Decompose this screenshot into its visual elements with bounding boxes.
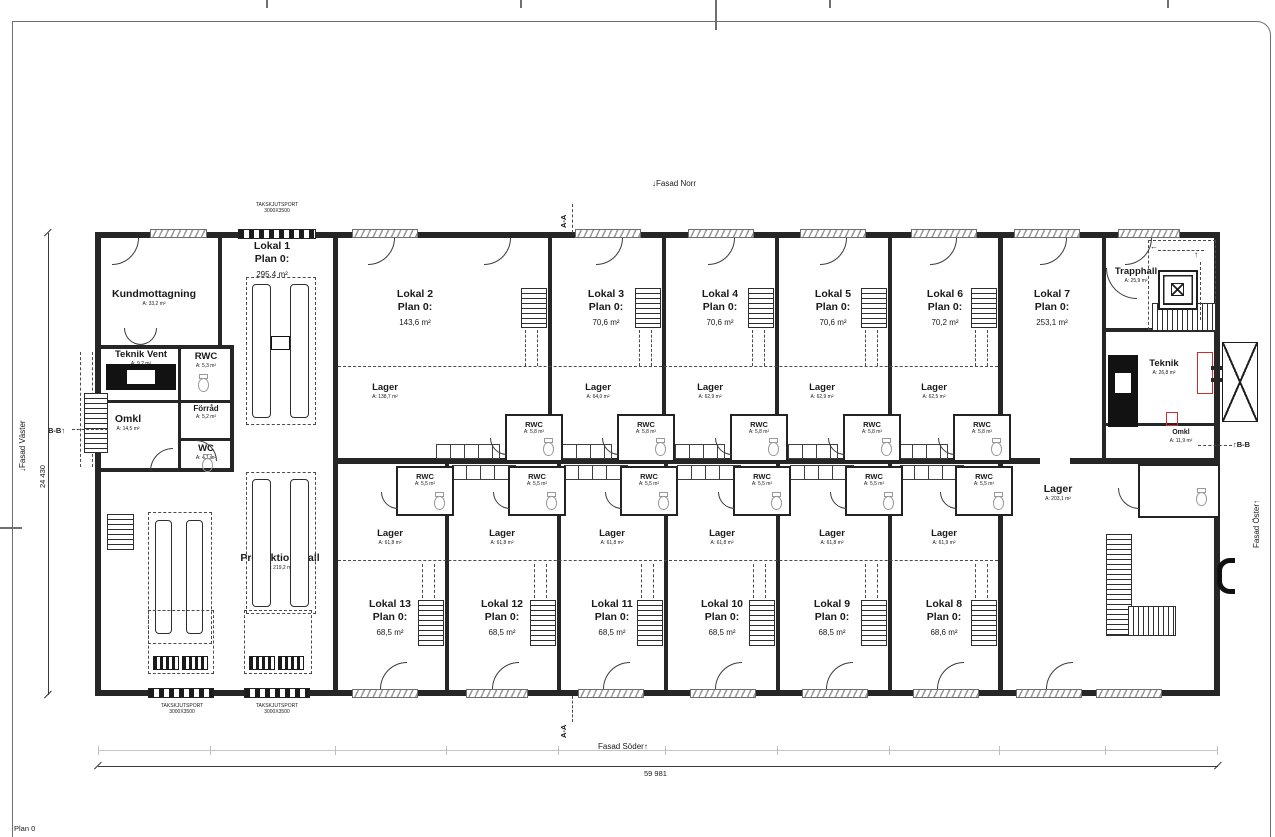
unit-label-line: 68,5 m² [701,628,743,638]
lager-label-lokal-11: LagerA: 61,8 m² [599,528,625,546]
lager-label-lokal-10: LagerA: 61,8 m² [709,528,735,546]
toilet-rwc-bottom-11 [658,496,669,510]
stair-up-dash-a-bottom-8 [975,564,976,598]
stair-produktionshall [107,514,134,550]
rwc-bottom-10-label: RWCA: 5,5 m² [752,472,772,488]
dim-gray-line [98,750,1218,751]
window-top-4 [800,229,866,238]
unit-label-line: 70,6 m² [702,318,738,328]
floor-plan-sheet: ↓Fasad Norr Fasad Söder↑ ↓Fasad Väster F… [0,0,1275,837]
window-top-7 [1118,229,1180,238]
lager-label-line: A: 138,7 m² [372,394,398,400]
room-label-rwc-left: RWCA: 5,3 m² [195,351,218,369]
unit-label-line: 70,2 m² [927,318,963,328]
unit-label-line: 70,6 m² [588,318,624,328]
unit-label-lokal-8: Lokal 8Plan 0:68,6 m² [926,598,962,638]
window-bottom-3 [690,689,756,698]
rwc-top-4-label: RWCA: 5,8 m² [749,420,769,436]
unit-label-line: Lokal 9 [814,598,850,611]
unit-label-line: Plan 0: [926,611,962,624]
lager-label-line: Lager [585,382,611,394]
lager-label-line: Lager [697,382,723,394]
wall-left-h400 [98,400,233,403]
room-label-lokal1: Lokal 1Plan 0:295,4 m² [254,240,290,280]
wall-forrad-wc [181,438,232,441]
mezzanine-dash-top [338,366,998,367]
unit-label-line: Lokal 12 [481,598,523,611]
stair-up-dash-a-top-2 [525,330,526,366]
window-bottom-7 [1096,689,1162,698]
crane-hook-symbol [1217,558,1235,594]
window-top-5 [911,229,977,238]
stair-up-dash-a-bottom-13 [422,564,423,598]
lager-label-lokal-3: LagerA: 64,0 m² [585,382,611,400]
rwc-bottom-13-label: RWCA: 5,5 m² [415,472,435,488]
lokal1-lift-2-post-right [290,479,309,607]
toilet-rwc-bottom-10 [771,496,782,510]
stair-top-6 [971,288,997,328]
counter-bottom-0 [452,465,516,480]
rwc-label-line: A: 5,5 m² [752,481,772,487]
unit-label-line: Lokal 13 [369,598,411,611]
lager-label-line: A: 64,0 m² [585,394,611,400]
unit-label-line: 68,6 m² [926,628,962,638]
facade-label-west: ↓Fasad Väster [18,420,27,472]
unit-label-line: Lokal 6 [927,288,963,301]
stair-up-dash-b-bottom-8 [987,564,988,598]
arrow-down-icon: ↓ [18,468,27,472]
rwc-label-line: A: 5,5 m² [527,481,547,487]
lager-label-lokal-8: LagerA: 61,9 m² [931,528,957,546]
unit-label-line: Plan 0: [481,611,523,624]
rwc-bottom-8-label: RWCA: 5,5 m² [974,472,994,488]
window-bottom-2 [578,689,644,698]
room-label-lokal7: Lokal 7Plan 0:253,1 m² [1034,288,1070,328]
dim-gray-tick-1 [210,746,211,755]
dimension-width: 59 981 [640,769,671,778]
dim-gray-tick-6 [777,746,778,755]
facade-label-east: Fasad Öster↑ [1252,500,1261,548]
unit-label-line: Plan 0: [591,611,632,624]
east-lift-symbol [1222,342,1258,422]
stair-bottom-12 [530,600,556,646]
toilet-rwc-top-4 [768,442,779,456]
teknik-vent-equipment-slot [126,369,156,385]
lager-label-line: Lager [709,528,735,540]
rwc-label-line: RWC [974,472,994,481]
toilet-rwc-left [198,378,209,392]
toilet-rwc-top-3 [655,442,666,456]
window-bottom-5 [913,689,979,698]
fold-mark-4 [829,0,831,8]
overhead-door-top [238,229,316,239]
stair-up-dash-b-bottom-12 [546,564,547,598]
window-top-0 [150,229,207,238]
unit-label-line: 68,5 m² [814,628,850,638]
unit-label-line: Lokal 4 [702,288,738,301]
lager-label-line: A: 61,8 m² [377,540,403,546]
stair-up-dash-b-top-4 [764,330,765,366]
window-bottom-0 [352,689,418,698]
lager-label-lokal-12: LagerA: 61,8 m² [489,528,515,546]
outer-wall-west [95,232,101,696]
rwc-label-line: A: 5,5 m² [974,481,994,487]
unit-label-lokal-10: Lokal 10Plan 0:68,5 m² [701,598,743,638]
overhead-door-bottom-2 [244,688,310,698]
stair-up-dash-a-bottom-9 [865,564,866,598]
stair-up-dash-b-top-6 [987,330,988,366]
lager-label-line: Lager [372,382,398,394]
bumper-1b [182,656,208,670]
lager-label-line: Lager [819,528,845,540]
counter-bottom-2 [677,465,741,480]
lager-label-line: Lager [489,528,515,540]
lager-label-line: Lager [809,382,835,394]
section-bb-line-left [72,429,108,430]
toilet-rwc-bottom-12 [546,496,557,510]
stair-lager-right-h [1128,606,1176,636]
rwc-label-line: A: 5,5 m² [864,481,884,487]
unit-label-line: Lokal 11 [591,598,632,611]
unit-label-line: 70,6 m² [815,318,851,328]
unit-label-line: Plan 0: [815,301,851,314]
wall-v-lokal1-east [333,236,338,692]
counter-top-0 [436,444,500,459]
fold-mark-left [0,527,22,529]
section-marker-aa-bottom: A-A [559,725,568,738]
wall-omkl-forrad [178,402,181,470]
lager-label-line: A: 61,8 m² [709,540,735,546]
unit-label-line: Plan 0: [701,611,743,624]
section-bb-line-right [1198,445,1232,446]
stair-up-dash-b-bottom-10 [765,564,766,598]
stair-bottom-9 [861,600,887,646]
toilet-rwc-bottom-9 [883,496,894,510]
room-label-omkl-right: OmklA: 11,9 m² [1170,429,1193,444]
overhead-door-label-bottom-1: TAKSKJUTSPORT3000X3500 [161,703,203,716]
section-marker-aa-top: A-A [559,215,568,228]
unit-label-lokal-2: Lokal 2Plan 0:143,6 m² [397,288,433,328]
teknik-red-small [1166,412,1178,426]
trapphall-arrow-line-v [1200,262,1201,320]
stair-top-4 [748,288,774,328]
lager-label-line: A: 62,9 m² [697,394,723,400]
rwc-label-line: RWC [864,472,884,481]
stair-bottom-13 [418,600,444,646]
lager-label-lokal-5: LagerA: 62,9 m² [809,382,835,400]
lager-label-lokal-4: LagerA: 62,9 m² [697,382,723,400]
rwc-label-line: RWC [862,420,882,429]
toilet-rwc-right [1196,492,1207,506]
unit-label-lokal-9: Lokal 9Plan 0:68,5 m² [814,598,850,638]
unit-label-line: 68,5 m² [591,628,632,638]
dim-left-line [48,233,49,695]
unit-label-line: 143,6 m² [397,318,433,328]
unit-label-line: Plan 0: [702,301,738,314]
unit-label-lokal-6: Lokal 6Plan 0:70,2 m² [927,288,963,328]
lokal1-lift-1-post-right [290,284,309,418]
unit-label-line: Lokal 8 [926,598,962,611]
dim-gray-tick-7 [889,746,890,755]
lager-label-lokal-2: LagerA: 138,7 m² [372,382,398,400]
rwc-top-6-label: RWCA: 5,8 m² [972,420,992,436]
fold-mark-5 [1167,0,1169,8]
stair-up-dash-b-bottom-9 [877,564,878,598]
stair-up-dash-a-top-3 [639,330,640,366]
section-marker-bb-left: B-B↑ [48,426,65,435]
window-top-2 [575,229,641,238]
west-outside-dash-1 [80,352,81,467]
rwc-label-line: A: 5,8 m² [636,429,656,435]
lager-label-lokal-9: LagerA: 61,8 m² [819,528,845,546]
dimension-height: 24 430 [38,465,47,488]
window-top-1 [352,229,418,238]
toilet-rwc-bottom-13 [434,496,445,510]
stair-up-dash-a-bottom-10 [753,564,754,598]
lager-label-line: A: 61,8 m² [819,540,845,546]
room-label-omkl-left: OmklA: 14,5 m² [115,413,141,432]
window-bottom-1 [466,689,528,698]
stair-top-3 [635,288,661,328]
dim-gray-tick-3 [446,746,447,755]
rwc-label-line: RWC [636,420,656,429]
arrow-up-icon: ↑ [1252,500,1261,504]
room-label-lager-right: LagerA: 203,1 m² [1044,483,1073,502]
lokal1-lift-1-post-left [252,284,271,418]
east-lift-bar-2 [1211,378,1223,382]
rwc-label-line: A: 5,5 m² [639,481,659,487]
stair-bottom-10 [749,600,775,646]
lager-label-line: Lager [921,382,947,394]
unit-label-line: Plan 0: [927,301,963,314]
dim-gray-tick-4 [558,746,559,755]
window-bottom-4 [802,689,868,698]
rwc-label-line: RWC [415,472,435,481]
stair-up-dash-b-top-5 [877,330,878,366]
section-aa-line-bottom [572,696,573,722]
rwc-top-2-label: RWCA: 5,8 m² [524,420,544,436]
teknik-red-unit [1197,352,1213,394]
stair-top-5 [861,288,887,328]
stair-up-dash-b-top-2 [537,330,538,366]
teknik-right-equipment-slot [1114,372,1132,394]
lager-label-line: Lager [377,528,403,540]
dim-gray-tick-10 [1217,746,1218,755]
lager-label-lokal-13: LagerA: 61,8 m² [377,528,403,546]
room-label-teknik-right: TeknikA: 26,8 m² [1149,358,1178,376]
unit-label-lokal-3: Lokal 3Plan 0:70,6 m² [588,288,624,328]
facade-label-north: ↓Fasad Norr [652,179,696,188]
wall-left-v230 [230,346,234,472]
unit-label-line: 68,5 m² [481,628,523,638]
unit-label-lokal-4: Lokal 4Plan 0:70,6 m² [702,288,738,328]
rwc-label-line: A: 5,8 m² [862,429,882,435]
dim-gray-tick-8 [999,746,1000,755]
stair-up-dash-a-top-6 [975,330,976,366]
rwc-label-line: RWC [524,420,544,429]
wall-kundmottagning-east [218,236,222,348]
rwc-top-3-label: RWCA: 5,8 m² [636,420,656,436]
stair-bottom-8 [971,600,997,646]
section-aa-line-top [572,204,573,233]
overhead-door-label-bottom-2: TAKSKJUTSPORT3000X3500 [256,703,298,716]
dim-gray-tick-5 [665,746,666,755]
rwc-bottom-12-label: RWCA: 5,5 m² [527,472,547,488]
arrow-up-icon: ↑ [61,426,65,435]
window-top-3 [688,229,754,238]
dim-gray-tick-2 [335,746,336,755]
lager-label-line: A: 61,9 m² [931,540,957,546]
toilet-rwc-bottom-8 [993,496,1004,510]
lokal1-lift-2-post-left [252,479,271,607]
rwc-label-line: A: 5,8 m² [524,429,544,435]
east-lift-bar-1 [1211,366,1223,370]
toilet-rwc-top-5 [881,442,892,456]
window-bottom-6 [1016,689,1082,698]
rwc-label-line: RWC [749,420,769,429]
toilet-rwc-top-6 [991,442,1002,456]
window-top-6 [1014,229,1080,238]
unit-label-line: 68,5 m² [369,628,411,638]
stair-up-dash-a-bottom-12 [534,564,535,598]
fold-mark-3 [715,0,717,30]
rwc-right-room [1138,464,1220,518]
lager-label-line: Lager [599,528,625,540]
bumper-2a [249,656,275,670]
lager-label-line: A: 61,8 m² [599,540,625,546]
stair-up-dash-b-bottom-13 [434,564,435,598]
rwc-label-line: A: 5,5 m² [415,481,435,487]
stair-west-outside [84,393,108,453]
stair-up-dash-b-top-3 [651,330,652,366]
trapphall-arrow-line-h [1158,250,1204,251]
unit-label-lokal-13: Lokal 13Plan 0:68,5 m² [369,598,411,638]
fold-mark-2 [520,0,522,8]
bumper-1a [153,656,179,670]
dim-bottom-line [98,766,1218,767]
dim-gray-tick-0 [98,746,99,755]
lager-label-lokal-6: LagerA: 62,5 m² [921,382,947,400]
lokal1-lift-1-crossbar [271,336,290,350]
unit-label-line: Lokal 10 [701,598,743,611]
wall-v-lokal7-west [998,236,1003,692]
section-marker-bb-right: ↑B-B [1233,440,1250,449]
overhead-door-label-top: TAKSKJUTSPORT3000X3500 [256,202,298,215]
stair-up-dash-b-bottom-11 [653,564,654,598]
rwc-label-line: RWC [752,472,772,481]
rwc-bottom-9-label: RWCA: 5,5 m² [864,472,884,488]
rwc-label-line: A: 5,8 m² [749,429,769,435]
rwc-label-line: RWC [639,472,659,481]
unit-label-line: Plan 0: [814,611,850,624]
bumper-2b [278,656,304,670]
unit-label-lokal-12: Lokal 12Plan 0:68,5 m² [481,598,523,638]
lager-label-line: A: 62,9 m² [809,394,835,400]
wall-teknikvent-rwc [178,348,181,402]
elevator-car-icon [1171,283,1184,296]
plan-title: Plan 0 [14,824,35,833]
toilet-rwc-top-2 [543,442,554,456]
rwc-top-5-label: RWCA: 5,8 m² [862,420,882,436]
unit-label-line: Lokal 3 [588,288,624,301]
stair-up-dash-a-top-4 [752,330,753,366]
stair-bottom-11 [637,600,663,646]
mezzanine-dash-bottom [338,560,998,561]
stair-top-2 [521,288,547,328]
stair-up-dash-a-bottom-11 [641,564,642,598]
unit-label-line: Plan 0: [588,301,624,314]
unit-label-lokal-5: Lokal 5Plan 0:70,6 m² [815,288,851,328]
lager-label-line: A: 62,5 m² [921,394,947,400]
rwc-bottom-11-label: RWCA: 5,5 m² [639,472,659,488]
dim-gray-tick-9 [1105,746,1106,755]
room-label-forrad: FörrådA: 5,2 m² [193,404,218,420]
unit-label-line: Plan 0: [397,301,433,314]
unit-label-line: Lokal 2 [397,288,433,301]
fold-mark-1 [266,0,268,8]
wall-left-h345 [98,345,234,349]
unit-label-line: Plan 0: [369,611,411,624]
counter-bottom-1 [564,465,628,480]
unit-label-line: Lokal 5 [815,288,851,301]
room-label-kundmottagning: KundmottagningA: 33,2 m² [112,288,196,307]
rwc-label-line: A: 5,8 m² [972,429,992,435]
overhead-door-bottom-1 [148,688,214,698]
lager-label-line: Lager [931,528,957,540]
rwc-label-line: RWC [972,420,992,429]
unit-label-lokal-11: Lokal 11Plan 0:68,5 m² [591,598,632,638]
rwc-label-line: RWC [527,472,547,481]
lager-label-line: A: 61,8 m² [489,540,515,546]
stair-up-dash-a-top-5 [865,330,866,366]
